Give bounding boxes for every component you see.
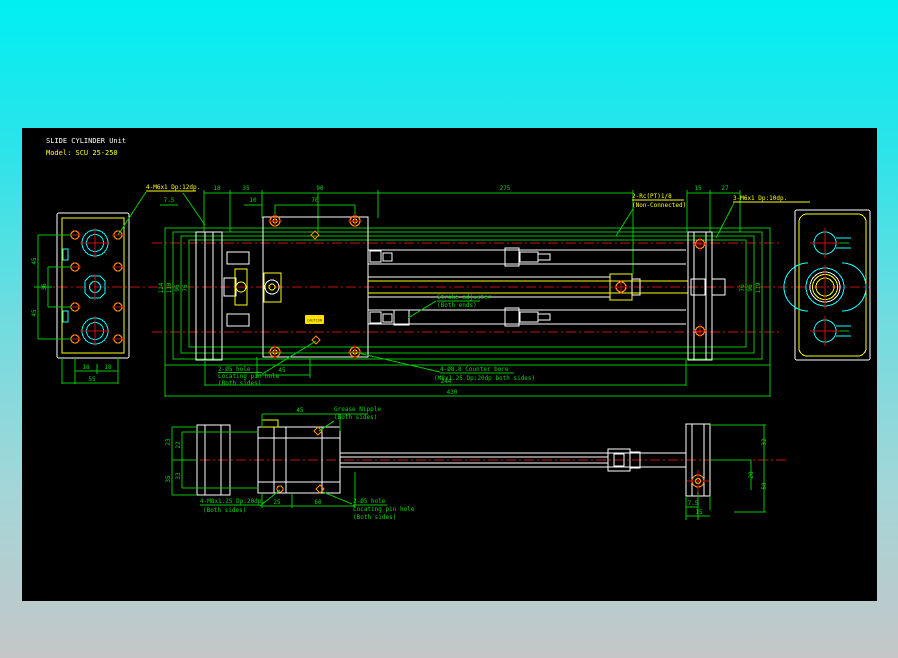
- dim-label: 7.5: [688, 500, 699, 507]
- dim-label: 55: [88, 376, 96, 383]
- dim-label: 27: [721, 185, 729, 192]
- dim-label: 33: [175, 472, 182, 480]
- pin-hole-mark: [316, 485, 324, 493]
- drawing-title: SLIDE CYLINDER Unit: [46, 137, 126, 145]
- dim-label: 20: [748, 471, 755, 479]
- pin-note2-line1: 2-Ø5 hole: [353, 498, 386, 505]
- tap-note-line2: (Both sides): [203, 507, 246, 514]
- dim-label: 76: [182, 284, 189, 292]
- front-view: 18 35 90 275 15 27 7.5 10 70 4-M6x1 Dp:1…: [146, 184, 810, 397]
- pin-note2-line3: (Both sides): [353, 514, 396, 521]
- cbore-note-line1: 4-Ø8.8 Counter bore: [440, 366, 509, 373]
- grease-point-mark: [314, 427, 322, 435]
- dim-label: 35: [242, 185, 250, 192]
- dim-label: 18: [82, 364, 90, 371]
- pin-note2-line2: Locating pin hole: [353, 506, 415, 513]
- dim-label: 96: [174, 284, 181, 292]
- port-note-line1: 2-Rc(PT)1/8: [632, 193, 672, 200]
- drawing-canvas: SLIDE CYLINDER Unit Model: SCU 25-250: [22, 128, 877, 601]
- dim-label: 244: [441, 378, 452, 385]
- rod-end-plate: [688, 232, 712, 360]
- dim-label: 35: [165, 475, 172, 483]
- pin-note-line3: (Both sides): [218, 380, 261, 387]
- dim-label: 124: [158, 282, 165, 293]
- dim-label: 15: [695, 509, 703, 516]
- title-block: SLIDE CYLINDER Unit Model: SCU 25-250: [46, 137, 126, 157]
- dim-label: 96: [747, 284, 754, 292]
- dim-label: 76: [739, 284, 746, 292]
- grease-note-line1: Grease Nipple: [334, 406, 381, 413]
- stroke-note-line1: Stroke adjuster: [437, 294, 492, 301]
- dim-label: 22: [175, 441, 182, 449]
- port-note-line2: (Non-Connected): [632, 202, 686, 209]
- dim-label: 119: [755, 282, 762, 293]
- dim-label: 110: [166, 282, 173, 293]
- dim-label: 70: [311, 197, 319, 204]
- stroke-note-line2: (Both ends): [437, 302, 477, 309]
- dim-label: 18: [213, 185, 221, 192]
- end-plate-inner: [62, 218, 124, 353]
- dim-label: 10: [249, 197, 257, 204]
- dim-label: 45: [31, 257, 38, 265]
- pin-note-line1: 2-Ø5 hole: [218, 366, 251, 373]
- dim-label: 275: [500, 185, 511, 192]
- dim-label: 15: [694, 185, 702, 192]
- drawing-model: Model: SCU 25-250: [46, 149, 118, 157]
- dim-label: 36: [41, 283, 48, 291]
- dim-label: 60: [314, 499, 322, 506]
- dim-label: 18: [104, 364, 112, 371]
- tap-note-right: 3-M6x1 Dp:10dp.: [733, 195, 787, 202]
- dim-label: 25: [273, 499, 281, 506]
- dim-label: 90: [316, 185, 324, 192]
- dim-label: 45: [296, 407, 304, 414]
- dim-label: 23: [165, 438, 172, 446]
- tap-right-leader: [716, 203, 734, 238]
- right-end-view: [784, 210, 870, 360]
- pin-note-line2: Locating pin hole: [218, 373, 280, 380]
- cad-viewer-background: SLIDE CYLINDER Unit Model: SCU 25-250: [0, 0, 898, 658]
- dim-label: 45: [278, 367, 286, 374]
- top-view: 45 Grease Nipple (Both sides) 23 22 35 3…: [165, 406, 768, 521]
- caution-plate-text: CAUTION: [307, 319, 322, 323]
- cad-drawing: SLIDE CYLINDER Unit Model: SCU 25-250: [22, 128, 877, 601]
- tap-note-line1: 4-M8x1.25 Dp:20dp.: [200, 498, 265, 505]
- dim-label: 50: [761, 482, 768, 490]
- grease-note-line2: (Both sides): [334, 414, 377, 421]
- top-geometry: [197, 420, 710, 496]
- left-end-view: 45 36 45 18 18 55: [31, 192, 146, 384]
- dim-label: 430: [447, 389, 458, 396]
- dim-label: 32: [761, 438, 768, 446]
- dim-label: 7.5: [164, 197, 175, 204]
- tap-note-left: 4-M6x1 Dp:12dp.: [146, 184, 200, 191]
- dim-label: 45: [31, 309, 38, 317]
